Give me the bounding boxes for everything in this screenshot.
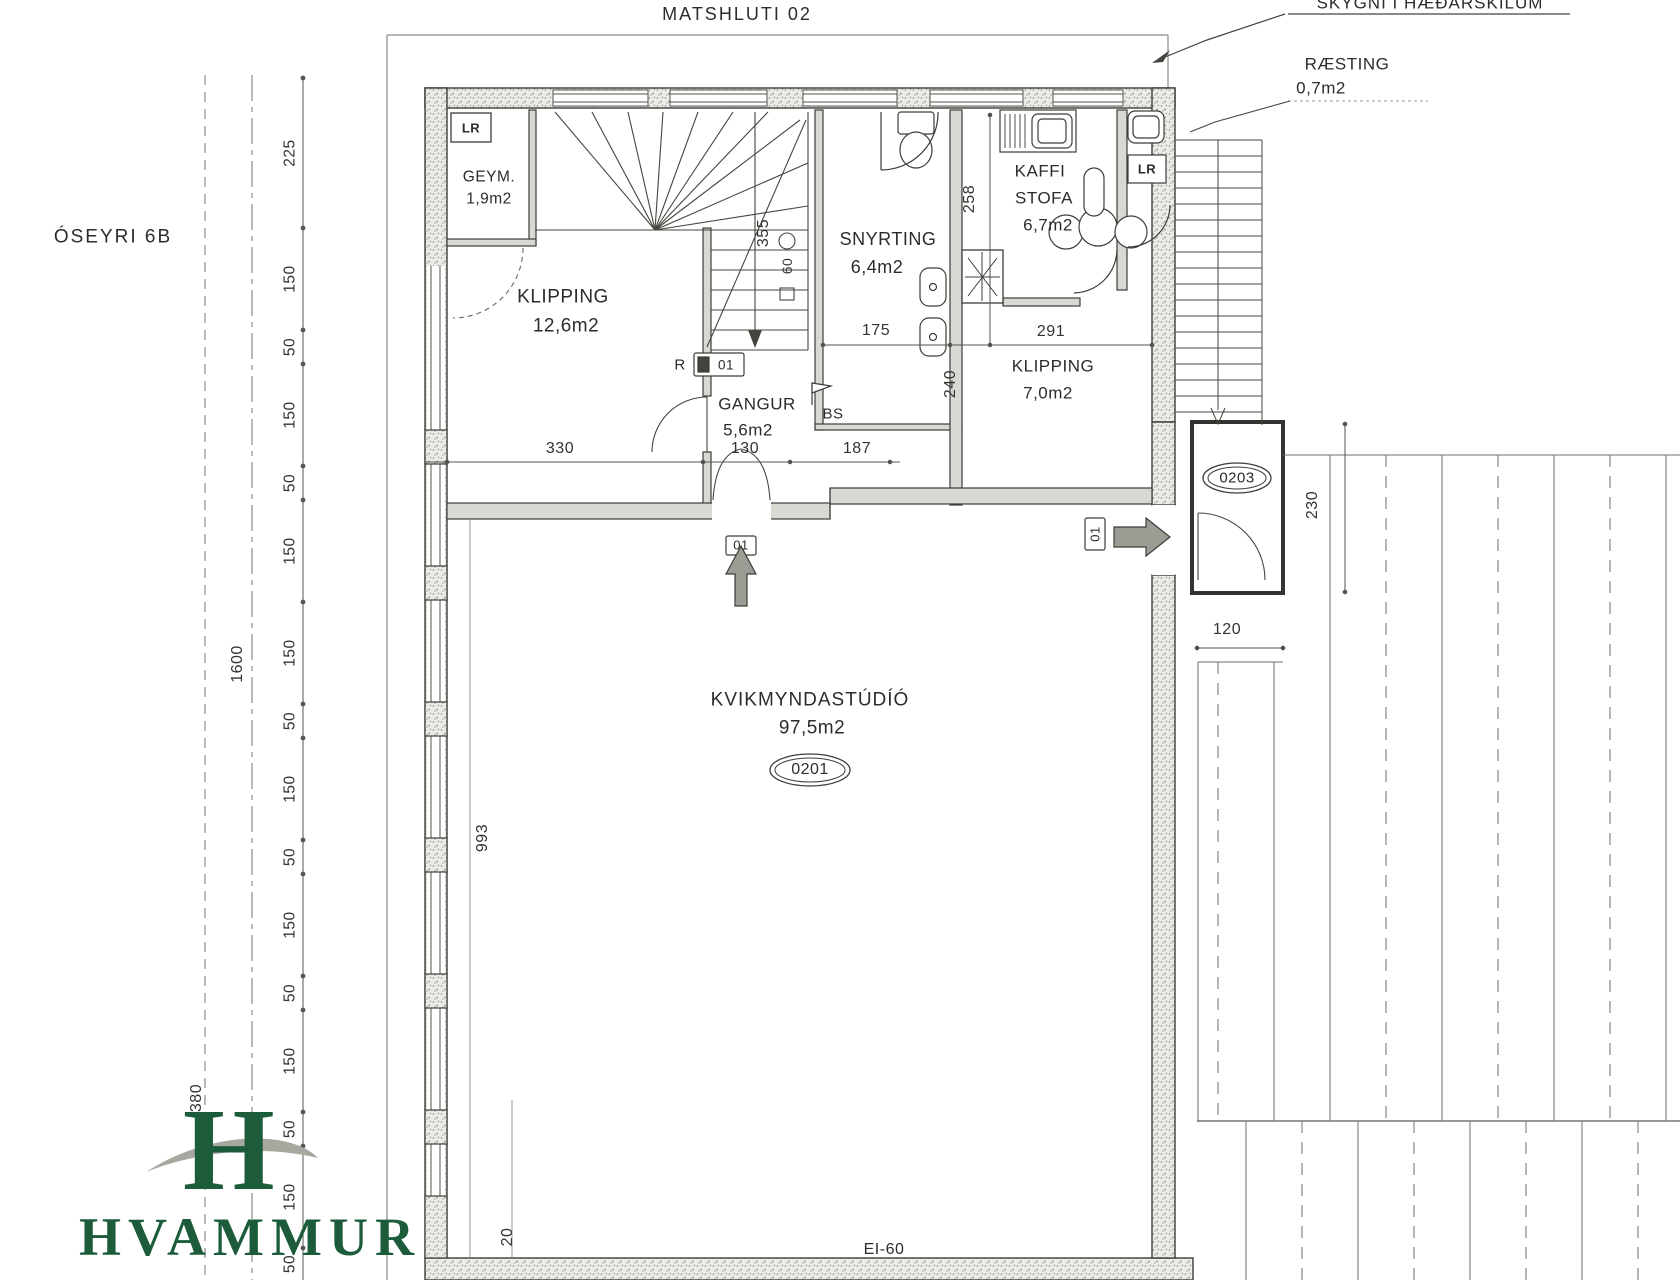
left-dimension-chain xyxy=(301,76,305,1280)
raesting-name: RÆSTING xyxy=(1305,56,1390,73)
kaffi-lr-label: LR xyxy=(1138,163,1156,176)
dimension-lines xyxy=(425,113,1347,1258)
dim-vestibule-width: 120 xyxy=(1213,622,1241,638)
exterior-stair xyxy=(1175,140,1262,425)
dim-stair-width: 60 xyxy=(780,258,794,275)
chain-dim: 150 xyxy=(282,911,298,938)
geym-lr-label: LR xyxy=(462,122,480,135)
dim-kaffi-depth: 258 xyxy=(962,185,978,213)
duct-shaft xyxy=(962,250,1003,303)
fire-rating-label: EI-60 xyxy=(864,1242,905,1258)
main-door-tag: 01 xyxy=(733,539,748,552)
chain-dim: 50 xyxy=(282,848,298,866)
chain-dim: 150 xyxy=(282,537,298,564)
chain-dim: 225 xyxy=(282,139,298,166)
side-door-tag: 01 xyxy=(1089,526,1102,541)
vestibule-tag: 0203 xyxy=(1219,471,1254,486)
vestibule xyxy=(1192,422,1283,593)
geym-name: GEYM. xyxy=(463,169,515,185)
floorplan-canvas: MATSHLUTI 02 SKYGNI Í HÆÐARSKILUM RÆSTIN… xyxy=(0,0,1680,1280)
raesting-area: 0,7m2 xyxy=(1296,80,1346,97)
studio-name: KVIKMYNDASTÚDÍÓ xyxy=(711,691,910,710)
dim-gangur-width: 130 xyxy=(731,441,759,457)
chain-dim: 50 xyxy=(282,474,298,492)
chair xyxy=(1115,216,1147,248)
street-label: ÓSEYRI 6B xyxy=(54,228,172,247)
dim-gangur-right: 187 xyxy=(843,441,871,457)
dim-klipping-width: 330 xyxy=(546,441,574,457)
dim-studio-left: 993 xyxy=(475,824,491,852)
bs-label: BS xyxy=(822,407,843,422)
klipping-door xyxy=(652,397,707,452)
kaffi-door-arc xyxy=(1074,250,1117,293)
raesting-leader xyxy=(1190,101,1428,132)
dim-vestibule-depth: 230 xyxy=(1305,491,1321,519)
toilet-bowl xyxy=(900,132,932,168)
snyrting-name: SNYRTING xyxy=(840,230,937,248)
studio-tag: 0201 xyxy=(791,762,829,778)
chain-dim: 150 xyxy=(282,775,298,802)
geym-door-arc xyxy=(453,248,523,318)
klipping-small-area: 7,0m2 xyxy=(1023,385,1073,402)
chain-dim: 150 xyxy=(282,639,298,666)
dim-snyrting-door: 175 xyxy=(862,323,890,339)
skylight-note: SKYGNI Í HÆÐARSKILUM xyxy=(1317,0,1544,12)
chain-dim: 50 xyxy=(282,712,298,730)
exterior-walls xyxy=(425,88,1193,1280)
chain-dim: 150 xyxy=(282,265,298,292)
chain-dim: 50 xyxy=(282,1120,298,1138)
toilet-tank xyxy=(898,112,934,134)
dim-klipping-small-depth: 240 xyxy=(943,370,959,398)
dim-snyrting-depth: 355 xyxy=(756,219,772,247)
geym-area: 1,9m2 xyxy=(466,191,512,207)
gangur-area: 5,6m2 xyxy=(723,422,773,439)
dim-wall: 20 xyxy=(500,1228,516,1247)
kaffistofa-name1: KAFFI xyxy=(1015,163,1066,180)
kaffistofa-area: 6,7m2 xyxy=(1023,217,1073,234)
snyrting-area: 6,4m2 xyxy=(851,258,904,276)
klipping-small-name: KLIPPING xyxy=(1012,358,1094,375)
chain-dim: 150 xyxy=(282,1047,298,1074)
gangur-name: GANGUR xyxy=(718,396,796,413)
logo-monogram: H xyxy=(183,1091,275,1209)
main-entry-door xyxy=(712,449,771,606)
left-wall-windows xyxy=(425,266,447,1258)
kaffistofa-name2: STOFA xyxy=(1015,190,1073,207)
dim-lot-width: 1600 xyxy=(230,645,246,683)
studio-area: 97,5m2 xyxy=(779,719,845,738)
chain-dim: 50 xyxy=(282,984,298,1002)
chain-dim: 150 xyxy=(282,401,298,428)
klipping-large-name: KLIPPING xyxy=(517,288,609,307)
stair-door-tag: 01 xyxy=(718,358,734,372)
stair-down-arrow-icon xyxy=(748,330,762,348)
chain-dim: 50 xyxy=(282,338,298,356)
plan-title: MATSHLUTI 02 xyxy=(662,5,812,23)
klipping-large-area: 12,6m2 xyxy=(533,317,599,336)
logo-wordmark: HVAMMUR xyxy=(79,1210,421,1264)
dim-klipping-small-width: 291 xyxy=(1037,324,1065,340)
stair-r-label: R xyxy=(674,358,685,373)
